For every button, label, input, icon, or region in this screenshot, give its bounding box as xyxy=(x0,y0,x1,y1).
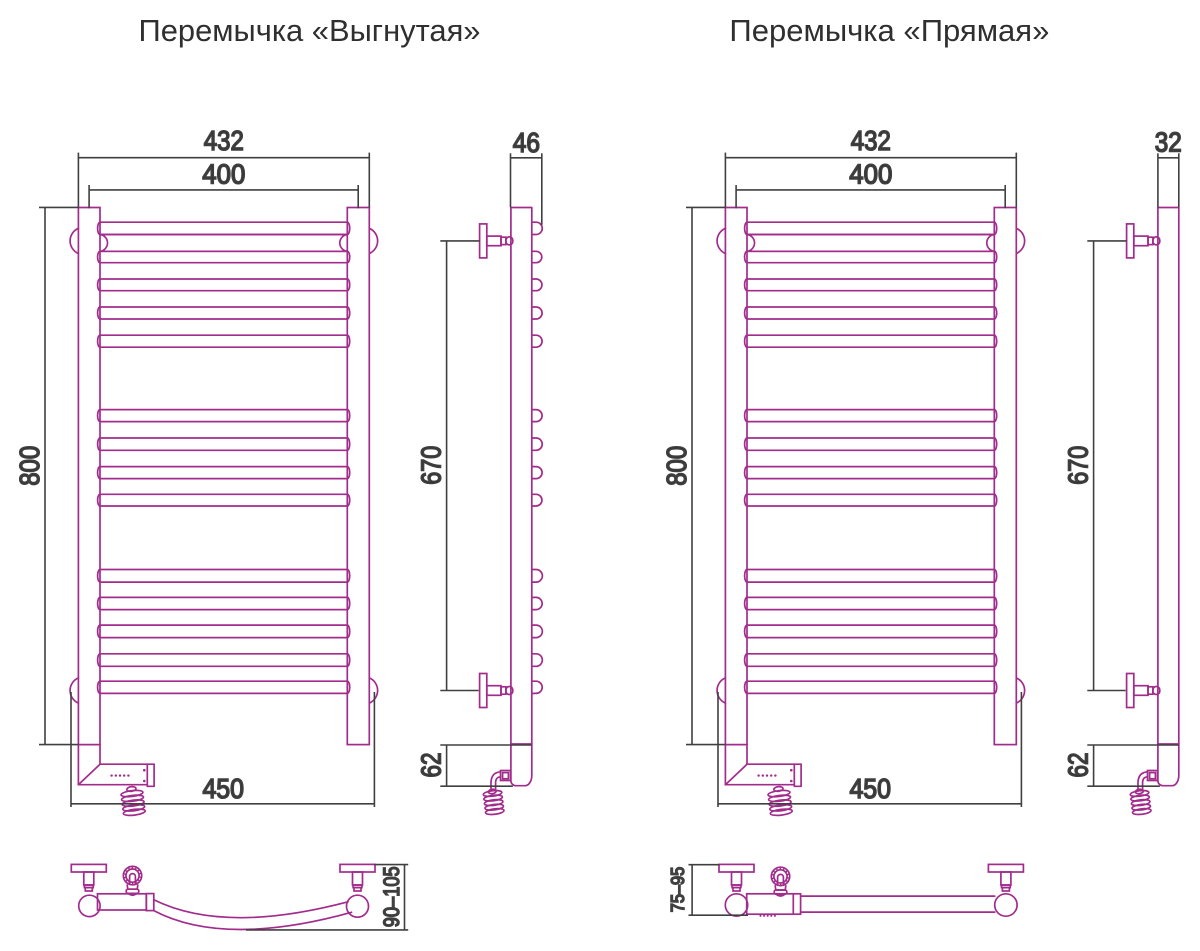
svg-text:450: 450 xyxy=(849,773,891,804)
svg-text:62: 62 xyxy=(416,753,447,778)
svg-text:46: 46 xyxy=(513,127,540,158)
svg-text:800: 800 xyxy=(661,446,692,486)
svg-text:Перемычка «Выгнутая»: Перемычка «Выгнутая» xyxy=(139,13,481,48)
svg-text:670: 670 xyxy=(1063,446,1094,485)
svg-text:432: 432 xyxy=(851,125,891,156)
svg-text:800: 800 xyxy=(14,446,45,486)
svg-text:Перемычка «Прямая»: Перемычка «Прямая» xyxy=(729,13,1049,48)
svg-text:75–95: 75–95 xyxy=(668,867,688,912)
svg-text:400: 400 xyxy=(202,158,245,189)
svg-text:400: 400 xyxy=(849,158,892,189)
svg-text:450: 450 xyxy=(202,773,244,804)
svg-text:32: 32 xyxy=(1155,127,1182,158)
svg-text:670: 670 xyxy=(416,446,447,485)
svg-text:90–105: 90–105 xyxy=(379,866,404,927)
svg-text:432: 432 xyxy=(204,125,244,156)
svg-text:62: 62 xyxy=(1063,753,1094,778)
